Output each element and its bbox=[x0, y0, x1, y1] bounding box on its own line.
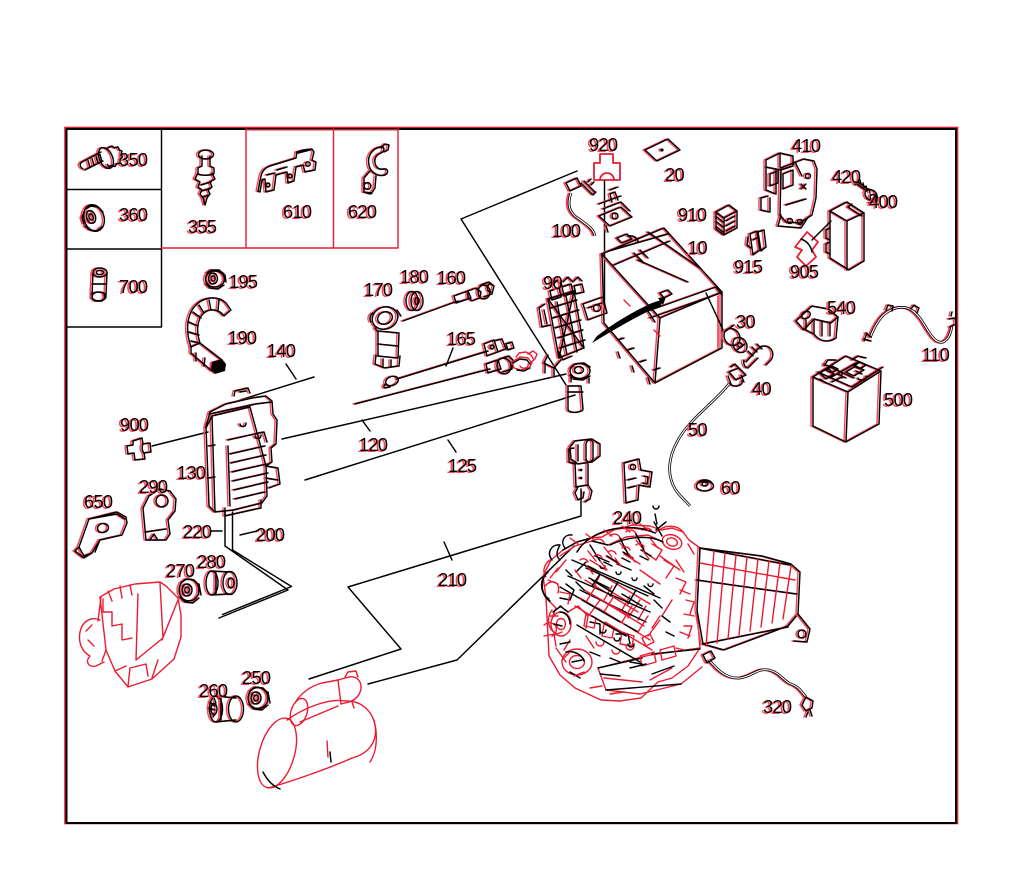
svg-text:140: 140 bbox=[267, 340, 296, 361]
svg-text:700: 700 bbox=[119, 276, 148, 297]
svg-text:160: 160 bbox=[437, 267, 466, 288]
svg-text:210: 210 bbox=[438, 569, 467, 590]
svg-text:220: 220 bbox=[183, 521, 212, 542]
svg-text:130: 130 bbox=[177, 462, 206, 483]
svg-text:125: 125 bbox=[448, 455, 477, 476]
svg-text:10: 10 bbox=[688, 237, 707, 258]
svg-text:910: 910 bbox=[678, 204, 707, 225]
svg-text:905: 905 bbox=[790, 261, 819, 282]
svg-text:500: 500 bbox=[884, 389, 913, 410]
svg-text:250: 250 bbox=[242, 667, 271, 688]
svg-text:360: 360 bbox=[119, 204, 148, 225]
svg-text:620: 620 bbox=[348, 201, 377, 222]
svg-text:180: 180 bbox=[400, 266, 429, 287]
svg-text:195: 195 bbox=[229, 271, 258, 292]
svg-text:280: 280 bbox=[197, 551, 226, 572]
svg-text:410: 410 bbox=[792, 135, 821, 156]
svg-text:90: 90 bbox=[543, 272, 562, 293]
svg-text:110: 110 bbox=[922, 344, 950, 365]
svg-text:400: 400 bbox=[869, 191, 898, 212]
svg-text:270: 270 bbox=[166, 560, 195, 581]
svg-text:190: 190 bbox=[228, 327, 257, 348]
svg-text:60: 60 bbox=[721, 477, 740, 498]
svg-text:915: 915 bbox=[734, 256, 763, 277]
svg-text:900: 900 bbox=[120, 414, 149, 435]
svg-text:920: 920 bbox=[589, 134, 618, 155]
svg-text:30: 30 bbox=[736, 311, 755, 332]
svg-text:355: 355 bbox=[188, 216, 217, 237]
svg-text:170: 170 bbox=[364, 279, 393, 300]
svg-text:50: 50 bbox=[688, 419, 707, 440]
svg-text:260: 260 bbox=[199, 680, 228, 701]
svg-text:40: 40 bbox=[752, 378, 771, 399]
svg-text:650: 650 bbox=[84, 491, 113, 512]
svg-text:100: 100 bbox=[552, 220, 581, 241]
svg-text:290: 290 bbox=[139, 476, 168, 497]
svg-text:350: 350 bbox=[119, 149, 148, 170]
svg-text:120: 120 bbox=[359, 434, 388, 455]
svg-text:165: 165 bbox=[447, 328, 476, 349]
svg-text:540: 540 bbox=[827, 297, 856, 318]
svg-text:320: 320 bbox=[763, 696, 792, 717]
svg-text:420: 420 bbox=[832, 166, 861, 187]
svg-text:610: 610 bbox=[283, 201, 312, 222]
svg-text:20: 20 bbox=[665, 164, 684, 185]
svg-text:200: 200 bbox=[256, 524, 285, 545]
